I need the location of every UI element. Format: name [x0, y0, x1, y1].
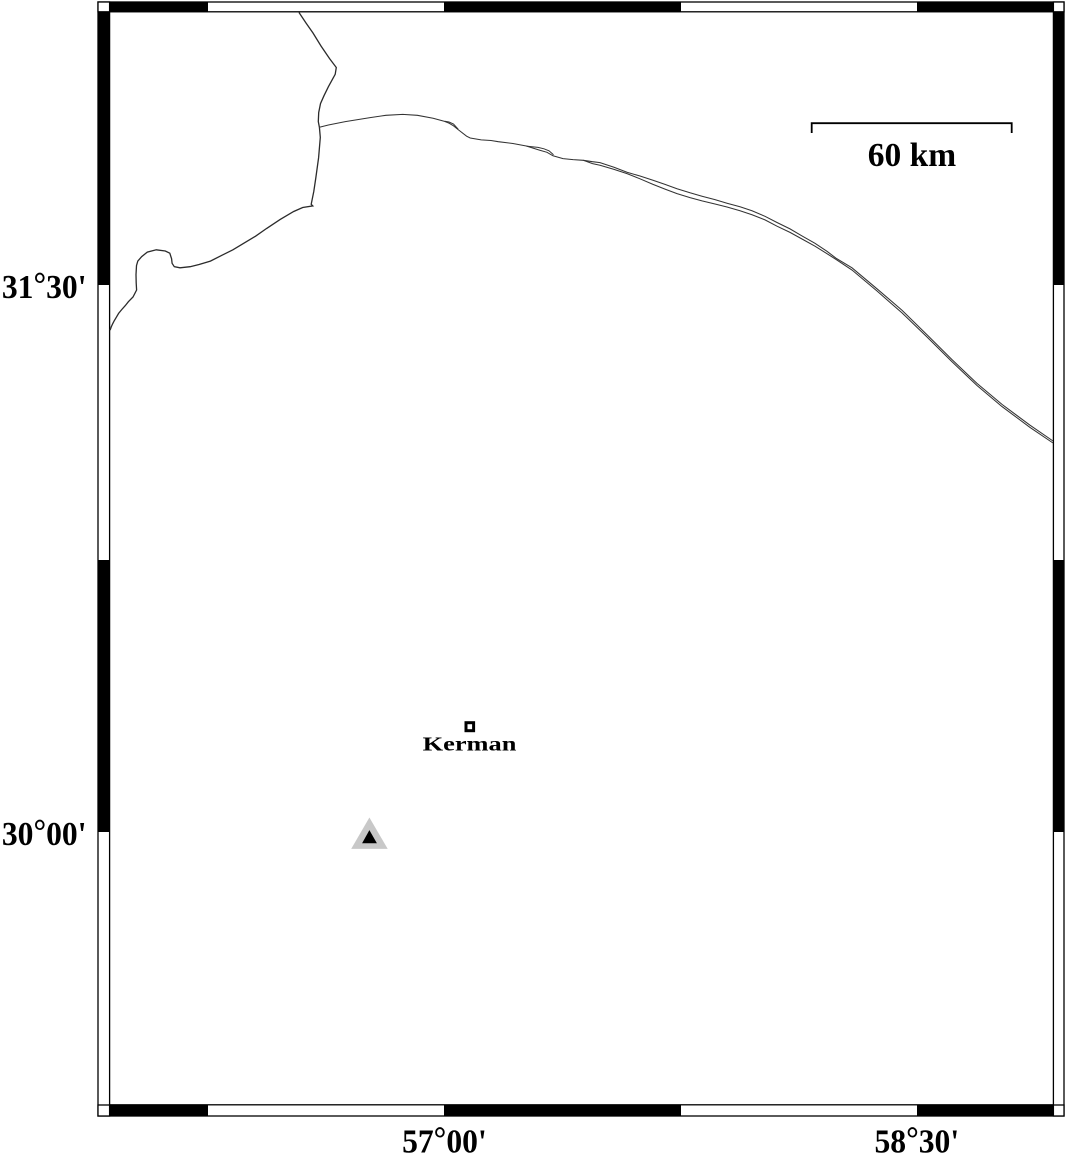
svg-text:31°30': 31°30': [2, 267, 87, 307]
svg-text:60 km: 60 km: [868, 137, 957, 174]
svg-text:Kerman: Kerman: [423, 733, 517, 755]
svg-text:58°30': 58°30': [874, 1121, 959, 1154]
svg-text:30°00': 30°00': [2, 814, 87, 854]
svg-text:57°00': 57°00': [402, 1121, 487, 1154]
